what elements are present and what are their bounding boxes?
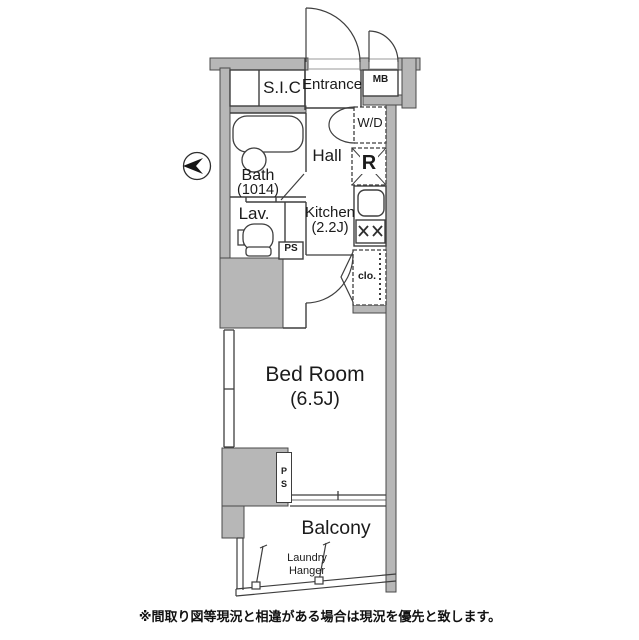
door-thresholds <box>308 59 398 69</box>
floor-plan: S.I.C Entrance MB W/D Hall R Bath (1014)… <box>0 0 639 640</box>
wall-mid-block <box>220 258 283 328</box>
balcony-sliding-window <box>290 491 386 506</box>
closet-label: clo. <box>356 270 378 282</box>
mb-label: MB <box>363 75 398 86</box>
toilet-icon <box>238 224 273 256</box>
closet-bifold-door <box>341 252 353 302</box>
wall-lower-block-foot <box>222 506 244 538</box>
ps-lower-box: P S <box>276 452 292 503</box>
ps-lower-s: S <box>281 479 287 489</box>
entrance-door-arc <box>306 8 360 62</box>
hall-label: Hall <box>302 147 352 165</box>
wall-closet-bottom <box>353 305 386 313</box>
floor-plan-linework <box>0 0 639 640</box>
refrigerator-label: R <box>360 152 378 174</box>
bathtub-icon <box>233 116 303 152</box>
bedroom-label: Bed Room <box>240 364 390 387</box>
sic-label: S.I.C <box>257 79 307 97</box>
bedroom-door-arc <box>306 255 353 303</box>
wall-top-mid <box>360 58 369 70</box>
north-arrow-icon <box>183 153 211 180</box>
wall-right-outer-top <box>402 58 416 108</box>
wd-label: W/D <box>354 116 386 130</box>
kitchen-size-label: (2.2J) <box>305 221 355 237</box>
bedroom-size-label: (6.5J) <box>240 389 390 410</box>
bath-size-label: (1014) <box>224 183 292 199</box>
wd-double-door <box>329 107 355 143</box>
wall-sic-bottom <box>230 106 306 113</box>
lav-label: Lav. <box>228 205 280 223</box>
laundry-hanger-label-2: Hanger <box>272 566 342 578</box>
kitchen-label: Kitchen <box>303 205 357 221</box>
disclaimer-footnote: ※間取り図等現況と相違がある場合は現況を優先と致します。 <box>88 606 552 625</box>
entrance-label: Entrance <box>302 77 360 93</box>
balcony-label: Balcony <box>288 518 384 539</box>
ps-lower-p: P <box>281 466 287 476</box>
bedroom-left-window <box>224 330 234 447</box>
ps-upper-label: PS <box>279 244 303 255</box>
bath-fixtures <box>233 116 303 172</box>
mb-door-arc <box>369 31 398 62</box>
laundry-hanger-label-1: Laundry <box>272 553 342 565</box>
wall-right-main <box>386 104 396 592</box>
